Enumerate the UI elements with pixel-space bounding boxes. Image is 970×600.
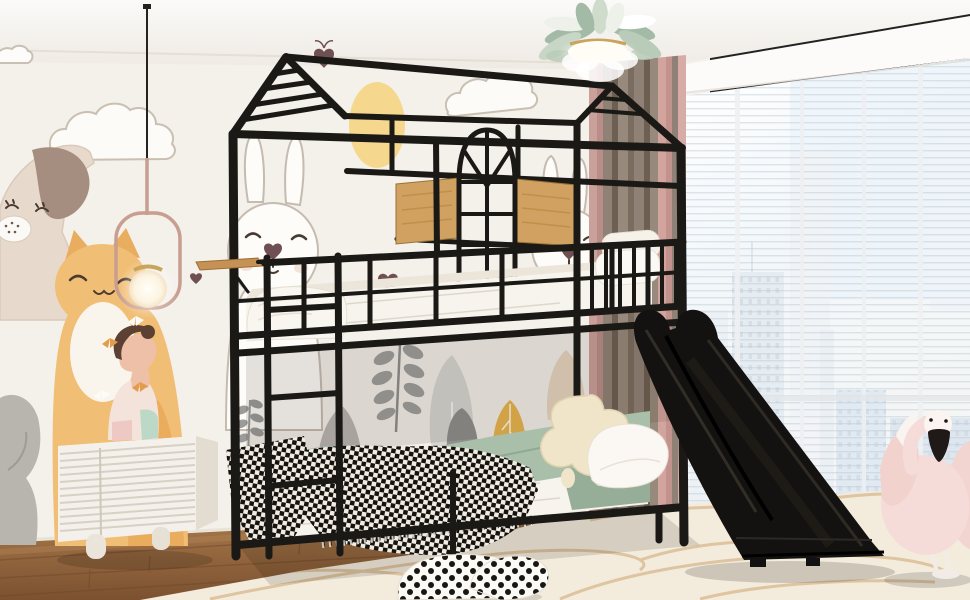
scene-canvas [0, 0, 970, 600]
nightstand-shadow [57, 550, 213, 570]
foot-gate-slats [592, 242, 676, 312]
figurine-apron [140, 409, 158, 440]
ladder-rail [267, 258, 269, 556]
flamingo-foot [932, 569, 960, 579]
wood-panel-left [396, 178, 458, 244]
ladder-rail [338, 256, 340, 553]
mural-sun [349, 82, 405, 168]
front-mid-upright [436, 140, 437, 254]
lamp-globe [129, 270, 167, 308]
slide-shadow [685, 561, 895, 583]
nightstand-leg [86, 534, 106, 559]
bedroom-photo [0, 0, 970, 600]
nightstand-seam [100, 448, 101, 540]
bunny-ear [245, 133, 264, 202]
front-left-post [233, 134, 236, 556]
ladder-rung [267, 306, 338, 310]
lower-pillow [588, 424, 668, 488]
polka-dot-pillow [398, 554, 549, 600]
slide-foot [750, 558, 766, 567]
nightstand-leg [152, 527, 170, 550]
figurine-skirt [112, 420, 132, 441]
nightstand-side [196, 436, 218, 530]
slide-foot [806, 558, 820, 566]
dog-muzzle [0, 216, 31, 242]
chandelier-light-disc [568, 41, 628, 63]
figurine-hair-bun [141, 325, 155, 339]
cloud-small [0, 46, 33, 63]
flamingo-eye [944, 419, 948, 423]
flamingo-eye [929, 418, 933, 422]
